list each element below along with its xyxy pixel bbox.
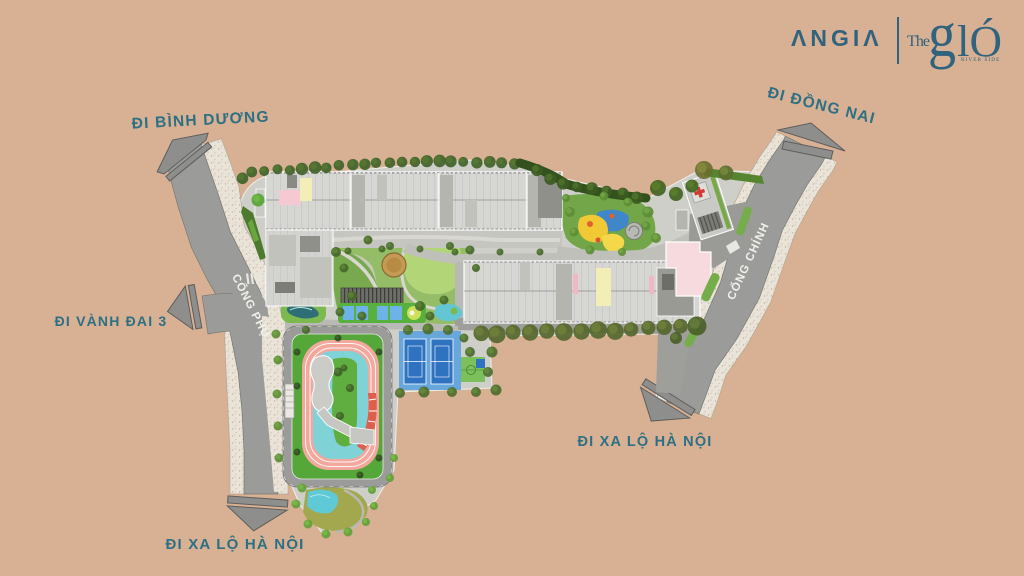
svg-text:g: g	[928, 0, 956, 70]
svg-text:ĐI XA LỘ HÀ NỘI: ĐI XA LỘ HÀ NỘI	[165, 535, 304, 553]
svg-text:ΛNGIΛ: ΛNGIΛ	[791, 25, 883, 51]
svg-text:RIVER SIDE: RIVER SIDE	[961, 57, 1000, 63]
svg-text:The: The	[907, 33, 930, 50]
svg-text:ĐI XA LỘ HÀ NỘI: ĐI XA LỘ HÀ NỘI	[577, 432, 712, 450]
svg-text:ĐI VÀNH ĐAI 3: ĐI VÀNH ĐAI 3	[55, 313, 168, 329]
